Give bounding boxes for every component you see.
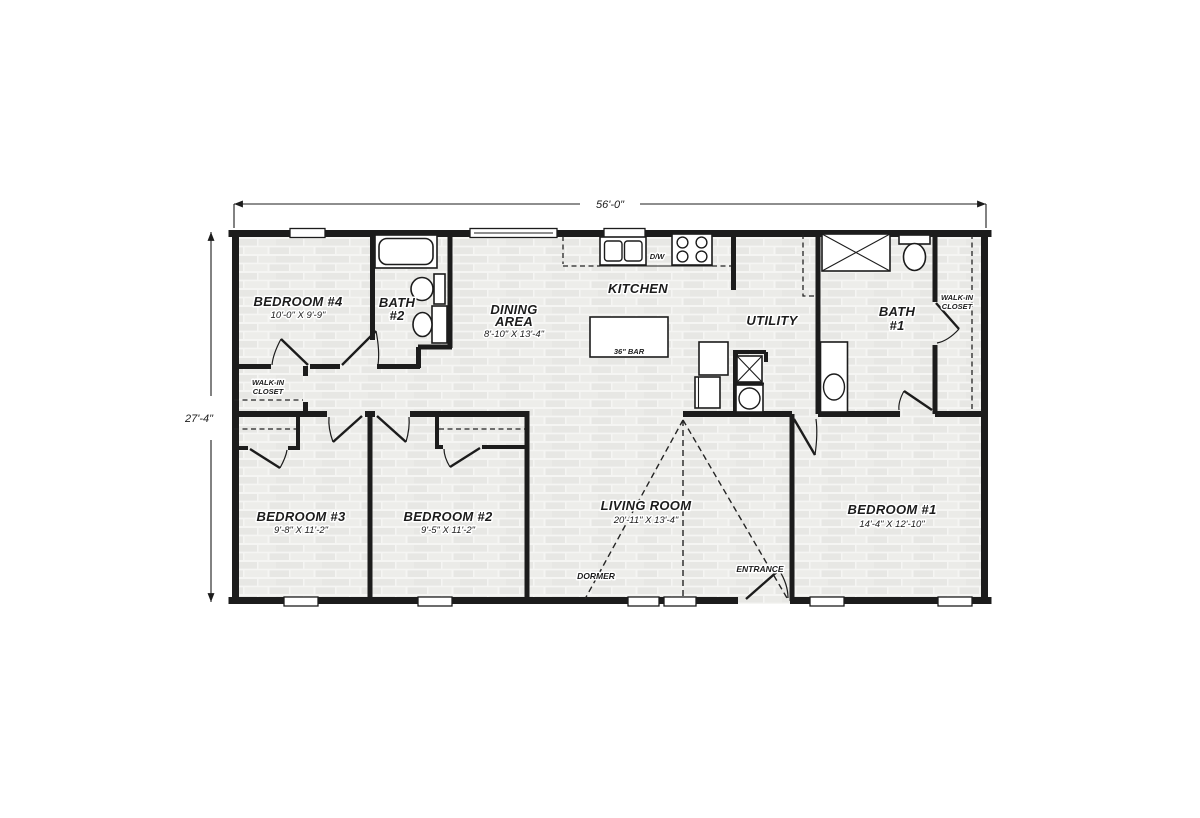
bedroom3-label: BEDROOM #3 [257, 509, 346, 524]
room-wic-right: WALK-IN CLOSET [941, 293, 974, 311]
bath2-sink-icon [411, 274, 445, 304]
kitchen-sink-icon [600, 237, 646, 265]
bath1-label: BATH [879, 304, 916, 319]
bedroom1-label: BEDROOM #1 [848, 502, 937, 517]
bar-label: 36" BAR [614, 347, 645, 356]
bedroom4-dims: 10'-0" X 9'-9" [271, 310, 326, 321]
wic-right-label: WALK-IN [941, 293, 974, 302]
window-bedroom1-2 [938, 597, 972, 606]
wic-right-label2: CLOSET [942, 302, 974, 311]
bathtub-icon [375, 235, 437, 268]
width-dimension-label: 56'-0" [596, 199, 625, 211]
room-wic-left: WALK-IN CLOSET [252, 378, 285, 396]
window-living-2 [664, 597, 696, 606]
dishwasher-label: D/W [650, 252, 666, 261]
living-dims: 20'-11" X 13'-4" [613, 515, 679, 526]
dimension-depth: 27'-4" [184, 232, 214, 602]
wic-left-label2: CLOSET [253, 387, 285, 396]
bedroom1-dims: 14'-4" X 12'-10" [859, 519, 925, 530]
dining-label2: AREA [494, 314, 533, 329]
dimension-width: 56'-0" [234, 199, 986, 228]
bedroom4-label: BEDROOM #4 [254, 294, 343, 309]
dining-dims: 8'-10" X 13'-4" [484, 329, 545, 340]
bedroom2-label: BEDROOM #2 [404, 509, 493, 524]
depth-dimension-label: 27'-4" [184, 413, 214, 425]
dormer-label: DORMER [577, 571, 616, 581]
bedroom2-dims: 9'-5" X 11'-2" [421, 525, 476, 536]
washer-icon [736, 385, 763, 412]
window-bedroom4 [290, 229, 325, 238]
living-label: LIVING ROOM [601, 498, 693, 513]
window-living-1 [628, 597, 659, 606]
floor-plan: 56'-0" 27'-4" [0, 0, 1200, 818]
range-icon [672, 234, 712, 265]
entrance-label: ENTRANCE [736, 564, 784, 574]
water-heater-icon [737, 356, 762, 382]
window-bedroom3 [284, 597, 318, 606]
utility-label: UTILITY [746, 313, 798, 328]
bath2-number: #2 [389, 308, 405, 323]
wic-left-label: WALK-IN [252, 378, 285, 387]
bath1-vanity-icon [821, 342, 848, 412]
shower-icon [822, 234, 890, 271]
floor-plan-page: 56'-0" 27'-4" [0, 0, 1200, 818]
kitchen-label: KITCHEN [608, 281, 668, 296]
room-bedroom1: BEDROOM #1 14'-4" X 12'-10" [848, 502, 937, 530]
bedroom3-dims: 9'-8" X 11'-2" [274, 525, 329, 536]
window-kitchen-sink [604, 229, 645, 238]
bath1-number: #1 [889, 318, 904, 333]
room-utility: UTILITY [746, 313, 798, 328]
window-bedroom1-1 [810, 597, 844, 606]
room-kitchen: KITCHEN [608, 281, 668, 296]
window-bedroom2 [418, 597, 452, 606]
